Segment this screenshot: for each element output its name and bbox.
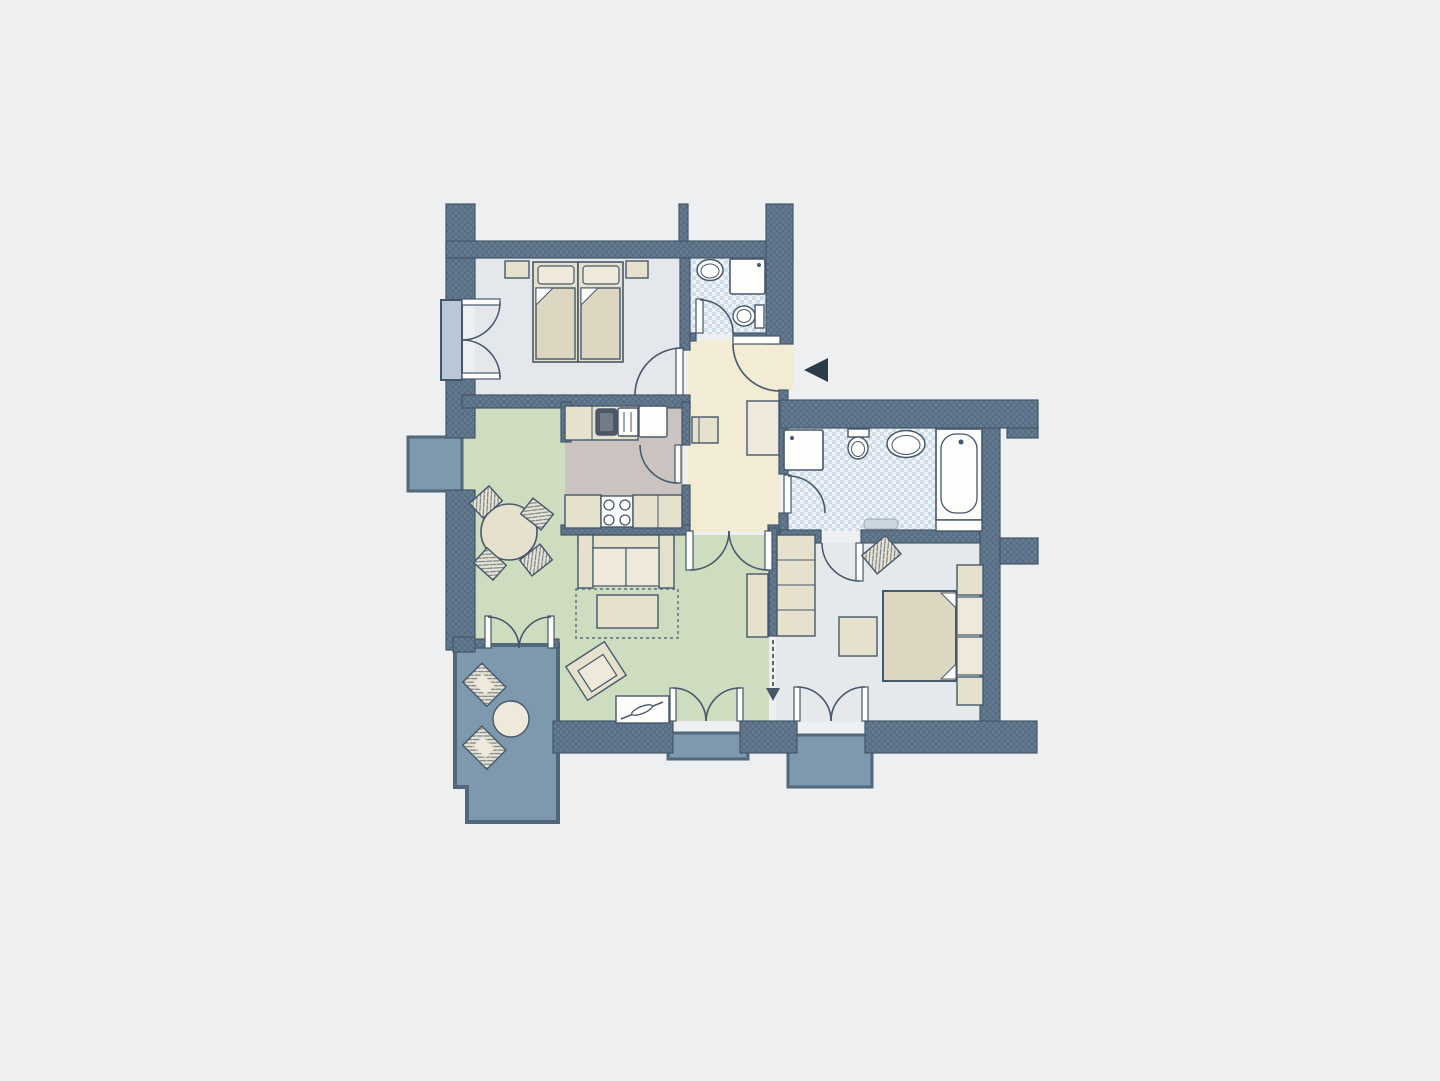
entry-door-leaf <box>733 336 780 344</box>
wall-kitchen-east-lower <box>682 485 690 526</box>
wall-stub-top-mid <box>679 204 688 241</box>
main-bath-toilet-bowl <box>848 437 868 459</box>
stove-burner-2 <box>620 500 630 510</box>
kitchen-fridge <box>639 406 667 437</box>
main-bath-shower <box>784 430 823 470</box>
bedroom2-door-step <box>788 735 872 787</box>
small-bath-shower-drain <box>757 263 761 267</box>
kitchen-counter-bottom-left <box>565 495 601 528</box>
wall-bedroom1-east <box>680 258 690 350</box>
wall-top <box>446 241 793 258</box>
wall-left-upper <box>446 258 475 302</box>
small-bath-door-leaf <box>696 299 703 333</box>
bed1-pillow-left <box>538 266 574 284</box>
main-bath-door-leaf <box>784 475 791 513</box>
main-bath-shower-drain <box>790 436 794 440</box>
wall-entry-column <box>766 204 793 344</box>
bed1-pillow-right <box>583 266 619 284</box>
living-sideboard <box>747 574 768 637</box>
wall-bottom-right <box>865 721 1037 753</box>
bedroom2-stool <box>839 617 877 656</box>
bed2-nightstand-top <box>957 565 983 595</box>
bedroom2-step-leaf-right <box>862 687 868 721</box>
bedroom2-step-leaf-left <box>794 687 800 721</box>
bath-mat <box>864 519 898 529</box>
wall-mainbath-north-cap <box>1007 428 1038 438</box>
hall-floor-entry-patch <box>779 344 793 390</box>
bed2-pillow-bottom <box>957 637 983 675</box>
entry-arrow <box>804 358 828 382</box>
balcony-french-leaf-right <box>548 616 554 648</box>
kitchen-sink-basin-inner <box>600 413 613 431</box>
bedroom1-door-leaf <box>676 348 683 395</box>
wall-bottom-mid <box>740 721 797 753</box>
wall-balcony-corner <box>453 637 475 652</box>
bedroom1-french-leaf-upper <box>462 299 500 305</box>
wall-kitchen-east-upper <box>682 402 690 445</box>
kitchen-sink-drainer <box>618 408 638 436</box>
bed1-nightstand-right <box>626 261 648 278</box>
hall-living-leaf-left <box>686 531 693 570</box>
floor-plan-page <box>0 0 1440 1081</box>
wall-left-lower <box>446 490 475 650</box>
balcony-table <box>493 701 529 737</box>
bath-bedroom2-door-leaf <box>856 543 863 581</box>
living-step-leaf-left <box>670 688 676 721</box>
sofa-arm-right <box>659 535 674 588</box>
balcony-french-leaf-left <box>485 616 491 648</box>
main-bath-sink <box>887 431 925 458</box>
hall-living-leaf-right <box>765 531 772 570</box>
windows <box>441 300 462 380</box>
bed1-nightstand-left <box>505 261 529 278</box>
wall-bottom-living <box>553 721 673 753</box>
bed2-pillow-top <box>957 597 983 635</box>
stove-burner-1 <box>604 500 614 510</box>
bathtub-faucet <box>959 440 964 445</box>
main-bath-toilet-tank <box>848 429 869 437</box>
floor-plan-canvas <box>0 0 1440 1081</box>
sofa-cushion-left <box>593 548 626 586</box>
bed2-nightstand-bottom <box>957 677 983 705</box>
wall-mainbath-north <box>780 400 1038 428</box>
small-bath-toilet-tank <box>755 305 764 328</box>
sofa-cushion-right <box>626 548 659 586</box>
bathtub-deck <box>936 520 982 531</box>
wall-hall-east-lower <box>779 513 788 532</box>
stove-burner-3 <box>604 515 614 525</box>
living-step-leaf-right <box>737 688 743 721</box>
living-door-step <box>668 733 748 759</box>
sofa-arm-left <box>578 535 593 588</box>
kitchen-door-leaf <box>675 445 681 483</box>
bedroom2-mattress <box>883 591 956 681</box>
hall-closet <box>747 401 779 455</box>
wall-bay-protrusion <box>408 437 462 491</box>
wall-smallbath-south-a <box>690 333 696 341</box>
wall-east-stub <box>1000 538 1038 564</box>
coffee-table <box>597 595 658 628</box>
hall-cabinet <box>692 417 718 443</box>
bedroom1-window <box>441 300 462 380</box>
bedroom1-french-leaf-lower <box>462 373 500 379</box>
stove-burner-4 <box>620 515 630 525</box>
